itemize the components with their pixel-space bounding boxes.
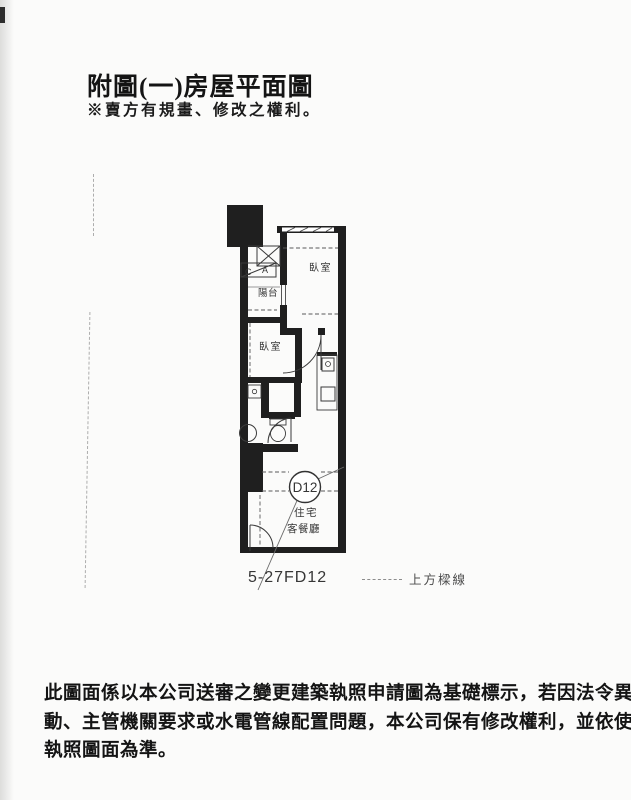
disclaimer-line-2: 動、主管機關要求或水電管線配置問題，本公司保有修改權利，並依使用 bbox=[44, 709, 614, 738]
bedroom2-label: 臥室 bbox=[259, 340, 282, 353]
living-dining-label: 客餐廳 bbox=[287, 522, 320, 535]
disclaimer-line-1: 此圖面係以本公司送審之變更建築執照申請圖為基礎標示，若因法令異 bbox=[44, 680, 614, 709]
scan-corner-mark bbox=[0, 7, 5, 23]
unit-circle-label: D12 bbox=[293, 480, 318, 495]
washbasin bbox=[248, 385, 261, 398]
core-block bbox=[227, 205, 263, 247]
fold-line-upper bbox=[93, 174, 94, 236]
bedroom1-label: 臥室 bbox=[309, 261, 332, 274]
dashed-line-sample bbox=[362, 579, 402, 580]
beam-line-legend-label: 上方樑線 bbox=[409, 569, 467, 588]
fold-line-lower bbox=[85, 312, 91, 588]
plan-walls bbox=[227, 205, 346, 553]
window-balcony bbox=[282, 285, 286, 305]
kitchen-sink bbox=[321, 387, 335, 401]
entry-door-arc bbox=[250, 525, 273, 548]
unit-type-label: 住宅 bbox=[294, 506, 318, 519]
floor-plan: 臥室 陽台 C A 臥室 D12 住宅 客餐廳 5-27FD12 bbox=[225, 200, 425, 600]
disclaimer-paragraph: 此圖面係以本公司送審之變更建築執照申請圖為基礎標示，若因法令異 動、主管機關要求… bbox=[44, 680, 614, 766]
scan-edge-shading bbox=[0, 0, 14, 800]
page-subtitle: ※賣方有規畫、修改之權利。 bbox=[87, 98, 321, 120]
balcony-label: 陽台 bbox=[258, 287, 278, 299]
stove bbox=[322, 358, 334, 371]
disclaimer-line-3: 執照圖面為準。 bbox=[44, 737, 614, 766]
window-top bbox=[282, 228, 334, 232]
bathroom-door-arc bbox=[268, 418, 291, 443]
beam-line-legend: 上方樑線 bbox=[362, 569, 467, 588]
ca-box-letter-c: C bbox=[245, 267, 252, 277]
plan-code-label: 5-27FD12 bbox=[248, 569, 327, 586]
ca-box-letter-a: A bbox=[262, 265, 268, 275]
